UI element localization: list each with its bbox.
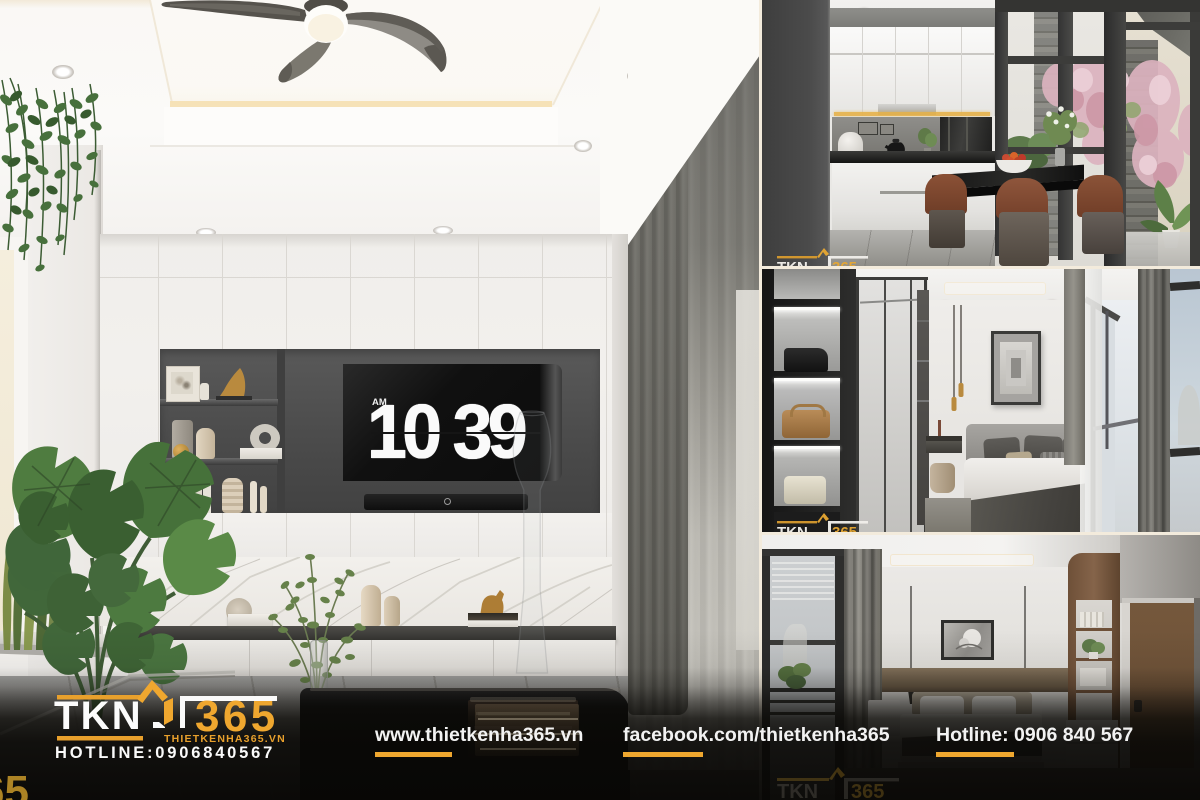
svg-text:TKN: TKN [54,694,143,738]
svg-text:HOTLINE:0906840567: HOTLINE:0906840567 [55,744,275,762]
svg-text:365: 365 [832,524,857,532]
svg-text:365: 365 [832,259,857,266]
svg-text:365: 365 [851,781,884,800]
svg-text:TKN: TKN [777,524,808,532]
svg-text:TKN: TKN [777,781,818,800]
svg-text:TKN: TKN [777,259,808,266]
